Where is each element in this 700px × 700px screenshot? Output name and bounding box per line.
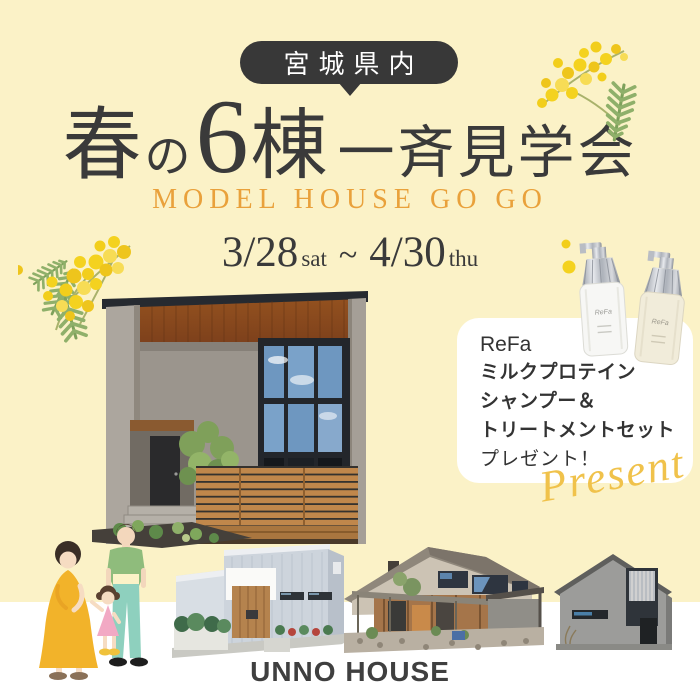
gift-line-2: シャンプー＆ [480,387,693,416]
title-number-6: 6 [196,84,249,190]
title-char-haru: 春 [63,80,142,195]
date-end: 4/30 [369,228,445,277]
shampoo-bottles-photo: ReFa ReFa [560,228,700,368]
title-char-tou: 棟 [251,84,328,195]
prefecture-badge-label: 宮城県内 [274,44,423,81]
subtitle: MODEL HOUSE GO GO [0,184,700,216]
house-photo-3 [550,548,676,656]
title-char-no: の [145,120,191,186]
date-end-day: thu [449,246,478,272]
date-start: 3/28 [222,228,298,277]
mimosa-branch-top-right-icon [528,25,664,143]
flyer-canvas: 宮城県内 春 の 6 棟 一斉見学会 MODEL HOUSE GO GO 3/2… [0,0,700,700]
main-house-photo [92,286,368,548]
svg-text:ReFa: ReFa [595,309,613,317]
house-photo-1 [168,540,348,666]
date-separator: ~ [339,237,357,275]
date-start-day: sat [301,246,327,272]
house-photo-2 [336,535,550,665]
brand-logo: UNNO HOUSE [0,656,700,688]
prefecture-badge: 宮城県内 [240,41,458,84]
